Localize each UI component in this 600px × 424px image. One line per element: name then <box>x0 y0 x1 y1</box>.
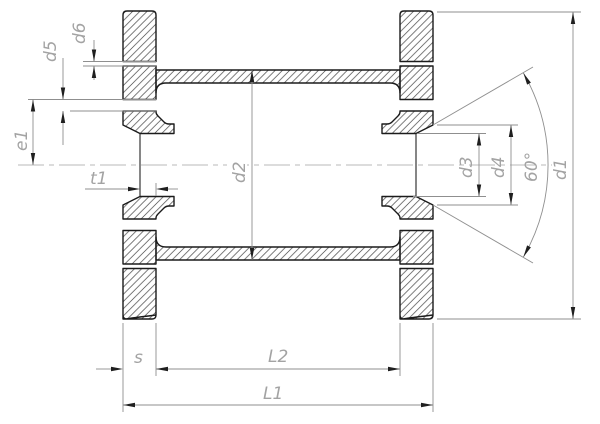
coupling-cross-section-drawing: d6 d5 e1 t1 <box>0 0 600 424</box>
barrel-bottom-wall <box>156 237 400 260</box>
dimension-d2: d2 <box>227 70 254 260</box>
left-flange-lower-slice <box>123 231 156 265</box>
d1-label: d1 <box>551 158 571 180</box>
dimension-e1: e1 <box>12 100 35 166</box>
d3-label: d3 <box>457 156 477 178</box>
d2-label: d2 <box>230 161 250 183</box>
d6-label: d6 <box>70 22 90 44</box>
d4-label: d4 <box>489 156 509 178</box>
right-flange-upper-slice <box>400 66 433 100</box>
L1-label: L1 <box>263 384 283 404</box>
s-label: s <box>134 348 143 368</box>
L2-label: L2 <box>268 347 288 367</box>
right-flange-bottom-cap <box>400 269 433 320</box>
dimension-L2: L2 <box>156 347 400 371</box>
angle-60-label: 60° <box>522 152 542 182</box>
barrel-top-wall <box>156 70 400 93</box>
left-flange-top-cap <box>123 11 156 62</box>
t1-label: t1 <box>90 169 107 189</box>
right-flange-lower-slice <box>400 231 433 265</box>
dimension-t1: t1 <box>85 169 178 196</box>
d5-label: d5 <box>41 40 61 62</box>
left-hub-upper-wall <box>123 111 174 134</box>
left-hub-lower-wall <box>123 197 174 220</box>
right-hub-upper-wall <box>382 111 433 134</box>
technical-drawing-page: d6 d5 e1 t1 <box>0 0 600 424</box>
e1-label: e1 <box>12 130 32 151</box>
dimension-L1: L1 <box>123 384 433 407</box>
left-flange-bottom-cap <box>123 269 156 320</box>
dimension-s: s <box>96 348 143 371</box>
left-flange-upper-slice <box>123 66 156 100</box>
right-flange-top-cap <box>400 11 433 62</box>
right-hub-lower-wall <box>382 197 433 220</box>
